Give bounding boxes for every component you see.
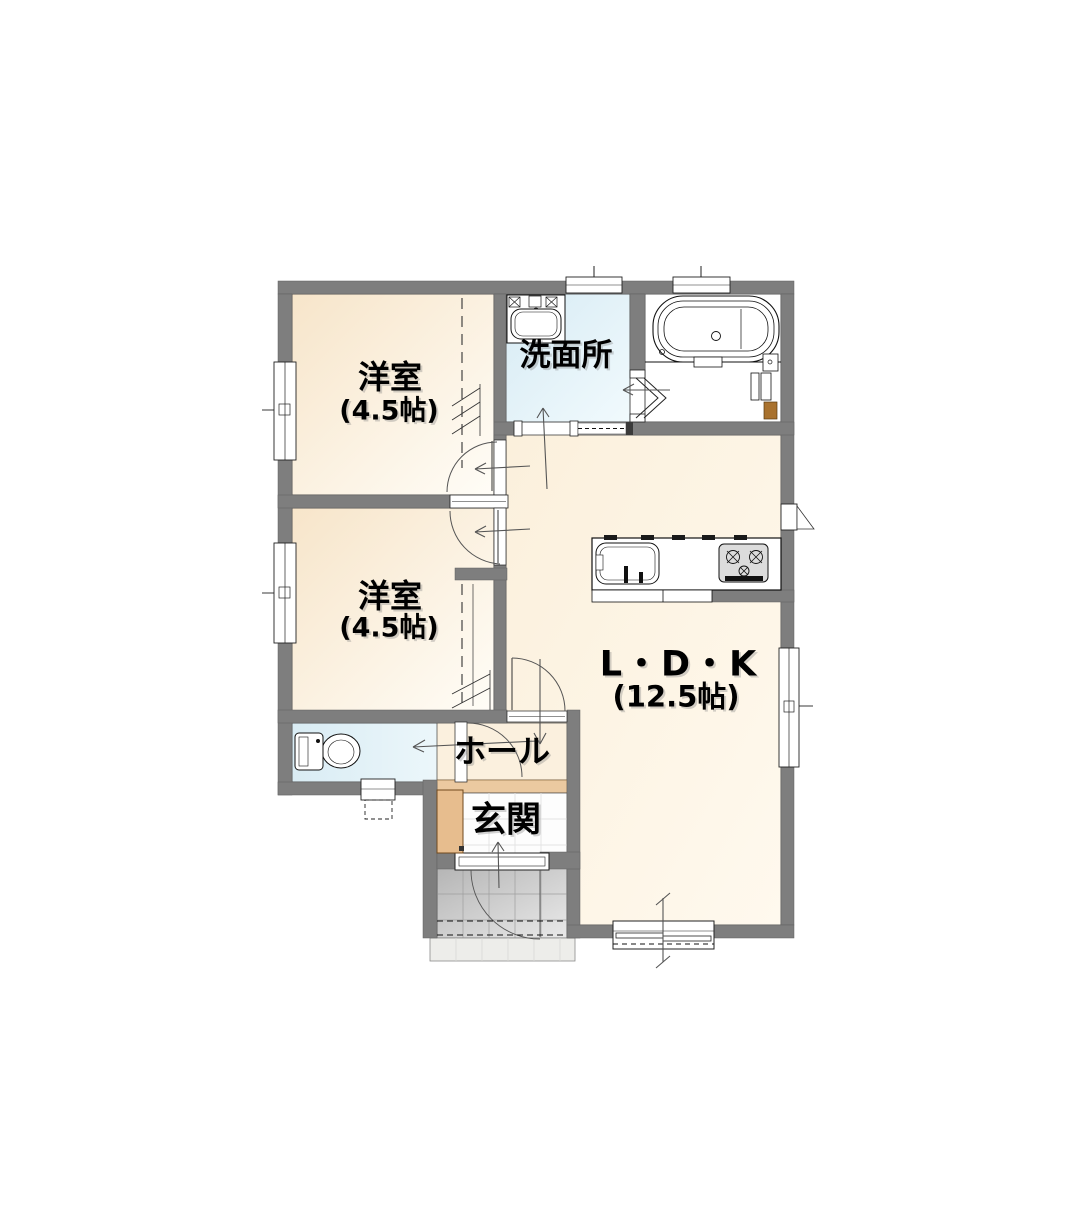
- window-toilet: [361, 779, 395, 819]
- window-kitchen-vent: [781, 504, 814, 530]
- entrance-label: 玄関: [471, 804, 541, 839]
- hall-label: ホール: [454, 735, 550, 767]
- ldk-label: L・D・K: [600, 648, 758, 683]
- door-washroom-sliding: [514, 421, 633, 436]
- washbasin: [507, 295, 565, 343]
- shoe-cabinet: [437, 790, 464, 853]
- washroom-label: 洗面所: [520, 341, 613, 372]
- kitchen-sink: [596, 543, 659, 584]
- ldk-area: (12.5帖): [612, 683, 739, 712]
- window-bedroom1: [262, 362, 296, 460]
- window-bathroom-top: [673, 266, 730, 293]
- bedroom2-label: 洋室: [358, 580, 422, 612]
- bedroom1-area: (4.5帖): [339, 398, 439, 425]
- window-washroom-top: [566, 266, 622, 293]
- bath-stool: [764, 402, 777, 419]
- window-bedroom2: [262, 543, 296, 643]
- porch-step: [430, 938, 575, 961]
- bedroom2-area: (4.5帖): [339, 615, 439, 642]
- window-ldk-side: [779, 648, 813, 767]
- bedroom1-label: 洋室: [358, 361, 422, 393]
- bathtub: [653, 296, 779, 362]
- floor-plan: 洋室 (4.5帖) 洋室 (4.5帖) 洗面所 L・D・K (12.5帖) ホー…: [0, 0, 1074, 1218]
- gas-stove: [719, 544, 768, 582]
- floor-plan-drawing: [0, 0, 1074, 1218]
